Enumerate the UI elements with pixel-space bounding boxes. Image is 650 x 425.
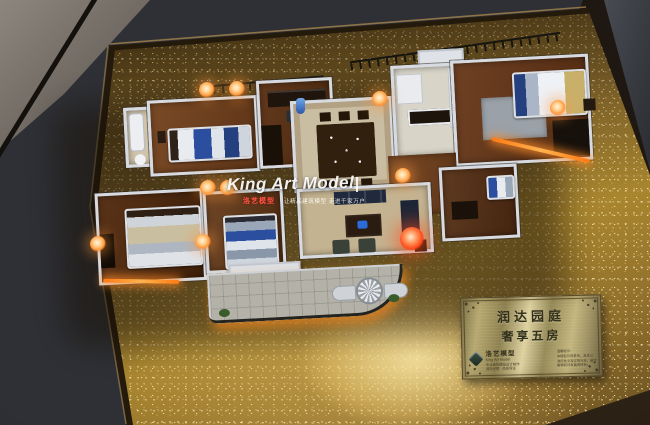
toilet xyxy=(134,154,146,166)
bedroom-mid-right xyxy=(439,164,521,242)
wardrobe xyxy=(552,119,590,157)
floor-lamp-red xyxy=(400,227,424,251)
dining-table xyxy=(316,122,377,179)
armchair xyxy=(332,239,350,254)
wardrobe xyxy=(261,125,283,166)
bedroom-top-left xyxy=(147,95,261,177)
desk xyxy=(451,201,478,220)
wall-lamp xyxy=(395,168,411,184)
balcony-terrace xyxy=(207,264,405,324)
plaque-corner-ornament xyxy=(462,299,482,314)
plaque-footer: 洛艺模型 King Art Model 专业建筑模型设计制作 诚信经营 · 品质… xyxy=(470,349,596,373)
bed-champagne xyxy=(124,205,203,269)
wall-lamp xyxy=(229,81,245,97)
watermark-badge: 洛艺模型 xyxy=(243,196,275,206)
wall-lamp xyxy=(372,91,388,107)
plaque-disclaimer-block: 温馨提示： 本模型仅供参考，具体以 政府批文及实物为准，最终 解释权归发展商所有… xyxy=(557,349,597,368)
gem-logo-icon xyxy=(468,351,484,367)
wall-lamp xyxy=(200,180,216,196)
project-plaque: 润达园庭 奢享五房 洛艺模型 King Art Model 专业建筑模型设计制作… xyxy=(460,294,603,379)
kitchen-island xyxy=(408,108,455,126)
bed-small-blue xyxy=(486,175,515,200)
table-decor-blue xyxy=(357,220,367,229)
nightstand xyxy=(157,131,166,143)
wall-lamp xyxy=(90,236,106,252)
dining-chair xyxy=(357,110,368,120)
bed-blue-white xyxy=(167,124,253,162)
kitchen-counter xyxy=(396,73,424,104)
side-table xyxy=(583,98,596,111)
wall-lamp xyxy=(195,234,211,250)
planter-arm-left xyxy=(332,285,357,301)
coffee-table xyxy=(345,214,382,238)
watermark-cursor-bar xyxy=(356,177,358,192)
blue-figurine xyxy=(296,98,305,114)
watermark-slogan: 让精品建筑模型 走进千家万户 xyxy=(284,197,365,205)
ornate-planter xyxy=(355,277,383,305)
plaque-corner-ornament xyxy=(579,296,599,311)
bathtub xyxy=(128,113,145,152)
plaque-project-subtitle: 奢享五房 xyxy=(461,325,602,345)
master-bedroom xyxy=(94,188,207,286)
plaque-brand-block: 洛艺模型 King Art Model 专业建筑模型设计制作 诚信经营 · 品质… xyxy=(485,351,519,373)
armchair xyxy=(358,238,376,253)
plaque-right-line: 解释权归发展商所有。 xyxy=(557,363,597,369)
photo-architectural-model-scene: { "watermark": { "title": "King Art Mode… xyxy=(0,0,650,425)
plaque-left-line: 诚信经营 · 品质保证 xyxy=(486,367,520,372)
watermark-title: King Art Model xyxy=(227,173,355,195)
dining-chair xyxy=(339,111,350,121)
wall-lamp xyxy=(199,82,215,98)
wall-lamp xyxy=(550,100,566,116)
dining-chair xyxy=(320,112,331,122)
bedroom-right xyxy=(450,54,593,167)
bed-silver-blue xyxy=(223,213,280,270)
